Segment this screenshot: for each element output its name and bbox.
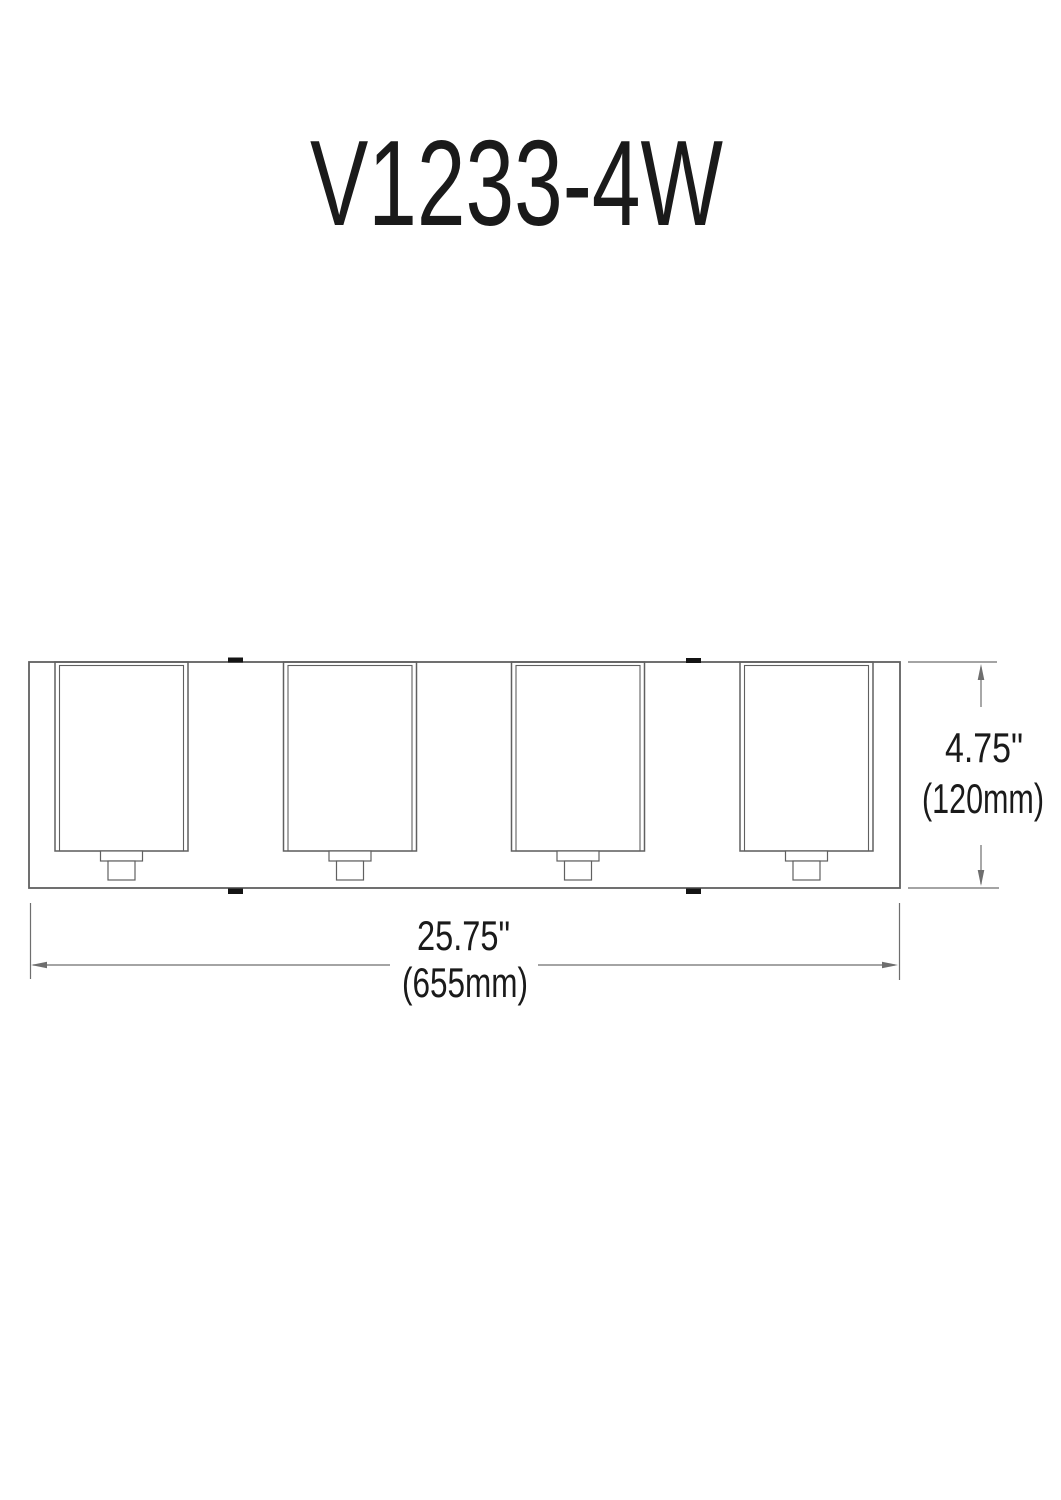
arrow-down-icon (978, 870, 985, 886)
shade-outline (512, 662, 645, 851)
width-dimension-millimeters: (655mm) (402, 959, 528, 1006)
height-dimension-millimeters: (120mm) (922, 775, 1044, 822)
mounting-tabs (228, 658, 701, 895)
shade (284, 662, 417, 851)
socket-flange (786, 851, 828, 861)
lamp-socket (329, 851, 371, 880)
shade-inner-face (60, 666, 184, 852)
technical-drawing: V1233-4W 4.75" (120mm) 25.75" (655mm) (0, 0, 1061, 1500)
page-title: V1233-4W (310, 115, 723, 251)
socket-body (793, 861, 820, 880)
shade (55, 662, 188, 851)
drawing-text: V1233-4W 4.75" (120mm) 25.75" (655mm) (310, 115, 1044, 1006)
drawing-page: V1233-4W 4.75" (120mm) 25.75" (655mm) (0, 0, 1061, 1500)
mounting-tab-bottom-left (228, 889, 243, 895)
shade-outline (284, 662, 417, 851)
shade-outline (55, 662, 188, 851)
shade-inner-face (516, 666, 640, 852)
fixture-frame (29, 662, 900, 888)
mounting-tab-bottom-right (686, 889, 701, 895)
socket-body (565, 861, 592, 880)
width-dimension-inches: 25.75" (417, 912, 510, 959)
socket-body (337, 861, 364, 880)
mounting-tab-top-left (228, 658, 243, 663)
socket-flange (329, 851, 371, 861)
lamp-socket (101, 851, 143, 880)
socket-flange (557, 851, 599, 861)
height-dimension-inches: 4.75" (945, 724, 1023, 771)
lamp-socket (557, 851, 599, 880)
arrow-right-icon (882, 962, 898, 969)
fixture-drawing (29, 662, 900, 888)
mounting-tab-top-right (686, 658, 701, 663)
arrow-up-icon (978, 664, 985, 680)
dimension-lines (31, 662, 1000, 980)
socket-flange (101, 851, 143, 861)
lamp-socket (786, 851, 828, 880)
shade-inner-face (288, 666, 412, 852)
shade-inner-face (745, 666, 869, 852)
shade-outline (740, 662, 873, 851)
socket-body (108, 861, 135, 880)
shade (740, 662, 873, 851)
arrow-left-icon (31, 962, 47, 969)
shade (512, 662, 645, 851)
